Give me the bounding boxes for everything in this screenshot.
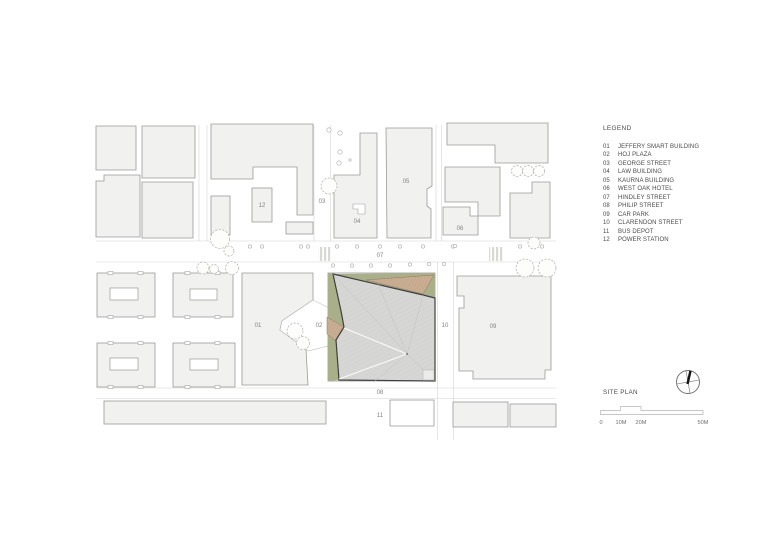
plan-label-09: 09 [490, 324, 497, 330]
legend-item-label: PHILIP STREET [618, 202, 664, 210]
legend-item: 07HINDLEY STREET [603, 194, 775, 202]
legend-item-id: 02 [603, 151, 618, 159]
legend-item: 06WEST OAK HOTEL [603, 185, 775, 193]
legend-item: 03GEORGE STREET [603, 160, 775, 168]
block-southwest-courtyards [97, 272, 235, 389]
legend-item-label: HINDLEY STREET [618, 194, 671, 202]
roof-apex-point [406, 353, 408, 355]
plan-label-03: 03 [319, 199, 326, 205]
drawing-title: SITE PLAN [603, 389, 638, 396]
legend-item-label: BUS DEPOT [618, 228, 654, 236]
legend-item-label: CLARENDON STREET [618, 219, 683, 227]
legend-item: 09CAR PARK [603, 211, 775, 219]
legend-item-label: WEST OAK HOTEL [618, 185, 673, 193]
legend-item: 05KAURNA BUILDING [603, 177, 775, 185]
legend-list: 01JEFFERY SMART BUILDING 02HOJ PLAZA 03G… [603, 143, 775, 244]
plan-label-04: 04 [354, 219, 361, 225]
scale-bar [601, 407, 704, 415]
plan-label-01: 01 [255, 323, 262, 329]
legend-item-id: 11 [603, 228, 618, 236]
legend-item-id: 08 [603, 202, 618, 210]
scale-label-0: 0 [599, 420, 602, 426]
legend-item-label: POWER STATION [618, 236, 669, 244]
legend-item-id: 03 [603, 160, 618, 168]
legend-item-id: 07 [603, 194, 618, 202]
legend-item-label: HOJ PLAZA [618, 151, 652, 159]
legend-item-label: KAURNA BUILDING [618, 177, 674, 185]
plan-label-06: 06 [457, 226, 464, 232]
block-west-oak [443, 123, 550, 238]
block-law-kaurna [334, 128, 432, 238]
north-arrow-icon [675, 369, 702, 396]
scale-label-50m: 50M [698, 420, 709, 426]
plan-label-11: 11 [377, 413, 384, 419]
legend-item: 02HOJ PLAZA [603, 151, 775, 159]
project-site [327, 273, 435, 381]
legend-item-label: GEORGE STREET [618, 160, 671, 168]
plan-label-07: 07 [377, 253, 384, 259]
legend-item: 01JEFFERY SMART BUILDING [603, 143, 775, 151]
legend-panel: LEGEND 01JEFFERY SMART BUILDING 02HOJ PL… [603, 125, 775, 244]
legend-item-id: 12 [603, 236, 618, 244]
site-plan-drawing: 01 02 03 04 05 06 07 08 09 10 11 12 [0, 0, 780, 552]
roof-corner-panel [423, 370, 434, 380]
block-power-station [211, 124, 313, 235]
scale-label-10m: 10M [616, 420, 627, 426]
block-northwest-buildings [96, 126, 195, 238]
plan-label-10: 10 [442, 323, 449, 329]
legend-item-label: CAR PARK [618, 211, 649, 219]
legend-item-id: 05 [603, 177, 618, 185]
legend-item-id: 10 [603, 219, 618, 227]
legend-item: 11BUS DEPOT [603, 228, 775, 236]
legend-item-label: LAW BUILDING [618, 168, 662, 176]
plan-label-08: 08 [377, 390, 384, 396]
legend-item: 08PHILIP STREET [603, 202, 775, 210]
legend-item-label: JEFFERY SMART BUILDING [618, 143, 699, 151]
legend-item: 10CLARENDON STREET [603, 219, 775, 227]
legend-item-id: 01 [603, 143, 618, 151]
block-south-strip [104, 400, 556, 427]
legend-item-id: 04 [603, 168, 618, 176]
legend-item: 12POWER STATION [603, 236, 775, 244]
pedestrian-crossings [318, 247, 503, 261]
legend-title: LEGEND [603, 125, 775, 132]
legend-item-id: 09 [603, 211, 618, 219]
building-09-car-park [457, 276, 551, 379]
plan-label-02: 02 [316, 323, 323, 329]
site-plan-sheet: { "legend": { "title": "LEGEND", "items"… [0, 0, 780, 552]
plan-label-05: 05 [403, 179, 410, 185]
scale-bar-labels: 0 10M 20M 50M [598, 420, 713, 430]
plan-label-12: 12 [259, 203, 266, 209]
legend-item-id: 06 [603, 185, 618, 193]
building-11-bus-depot [104, 401, 326, 424]
scale-label-20m: 20M [636, 420, 647, 426]
legend-item: 04LAW BUILDING [603, 168, 775, 176]
